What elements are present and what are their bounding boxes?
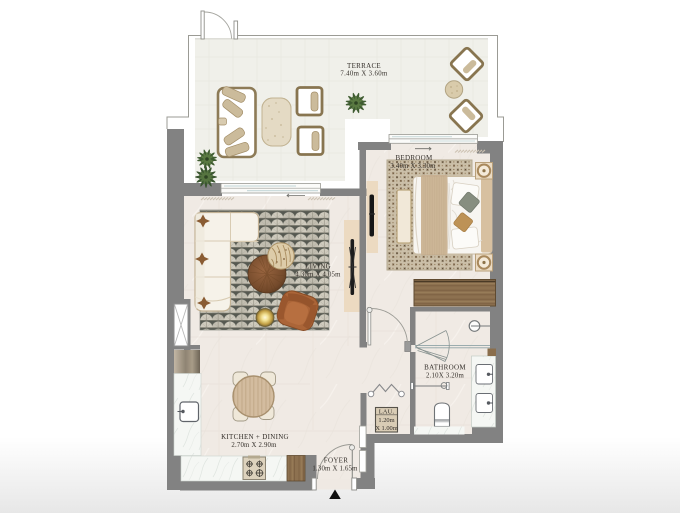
svg-text:X 1.00m: X 1.00m (375, 425, 397, 432)
svg-text:2.10X 3.20m: 2.10X 3.20m (426, 373, 464, 380)
svg-text:BEDROOM: BEDROOM (395, 154, 433, 162)
svg-text:2.70m X 2.90m: 2.70m X 2.90m (231, 442, 277, 449)
svg-text:LIVING: LIVING (305, 263, 331, 271)
svg-text:1.30m X 1.65m: 1.30m X 1.65m (312, 466, 358, 473)
svg-text:1.20m: 1.20m (378, 417, 394, 424)
svg-text:LAU.: LAU. (379, 409, 395, 416)
svg-text:BATHROOM: BATHROOM (424, 364, 466, 372)
svg-text:TERRACE: TERRACE (347, 62, 381, 70)
svg-text:4.30m X 4.05m: 4.30m X 4.05m (295, 272, 341, 279)
svg-text:KITCHEN + DINING: KITCHEN + DINING (221, 433, 289, 441)
svg-text:7.40m X 3.60m: 7.40m X 3.60m (340, 71, 388, 78)
svg-text:FOYER: FOYER (324, 457, 348, 465)
svg-text:3.40m X 3.30m: 3.40m X 3.30m (390, 163, 436, 170)
